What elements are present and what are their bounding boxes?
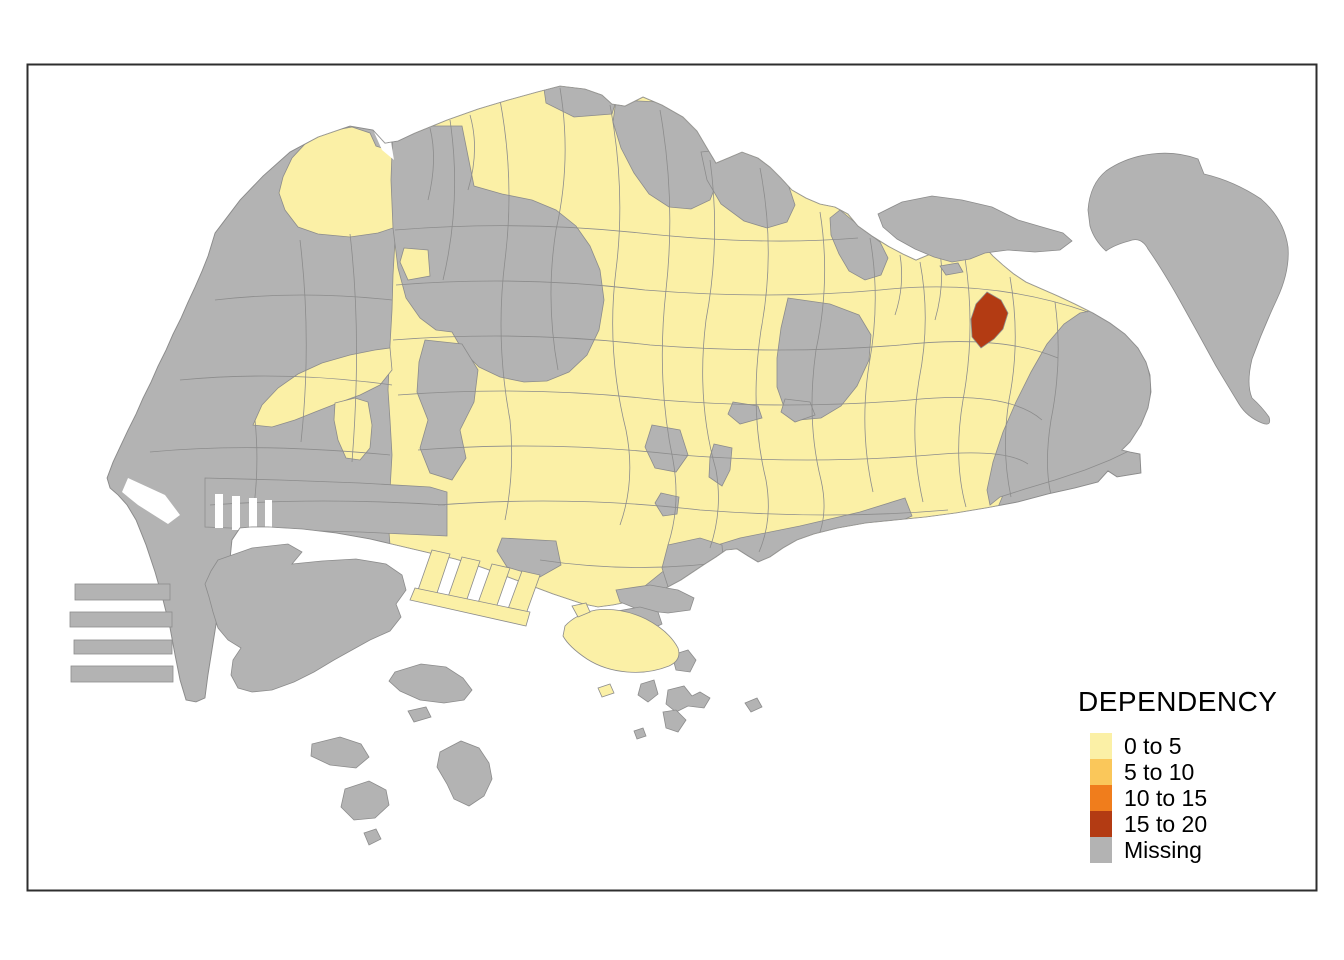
legend-item-label: Missing	[1112, 837, 1202, 864]
legend-swatch-10-15	[1090, 785, 1112, 811]
figure-canvas: { "figure": { "legend": { "title": "DEPE…	[0, 0, 1344, 960]
legend-item-label: 5 to 10	[1112, 759, 1194, 786]
legend-swatch-5-10	[1090, 759, 1112, 785]
legend-item-label: 15 to 20	[1112, 811, 1207, 838]
legend-rows: 0 to 5 5 to 10 10 to 15 15 to 20 Missing	[1090, 733, 1277, 863]
legend-swatch-0-5	[1090, 733, 1112, 759]
legend-item: 5 to 10	[1090, 759, 1277, 785]
legend-item: Missing	[1090, 837, 1277, 863]
legend-item-label: 0 to 5	[1112, 733, 1182, 760]
legend: DEPENDENCY 0 to 5 5 to 10 10 to 15 15 to…	[1078, 686, 1277, 863]
legend-title: DEPENDENCY	[1078, 686, 1277, 718]
legend-item: 10 to 15	[1090, 785, 1277, 811]
legend-swatch-missing	[1090, 837, 1112, 863]
legend-item: 0 to 5	[1090, 733, 1277, 759]
legend-item-label: 10 to 15	[1112, 785, 1207, 812]
legend-swatch-15-20	[1090, 811, 1112, 837]
legend-item: 15 to 20	[1090, 811, 1277, 837]
